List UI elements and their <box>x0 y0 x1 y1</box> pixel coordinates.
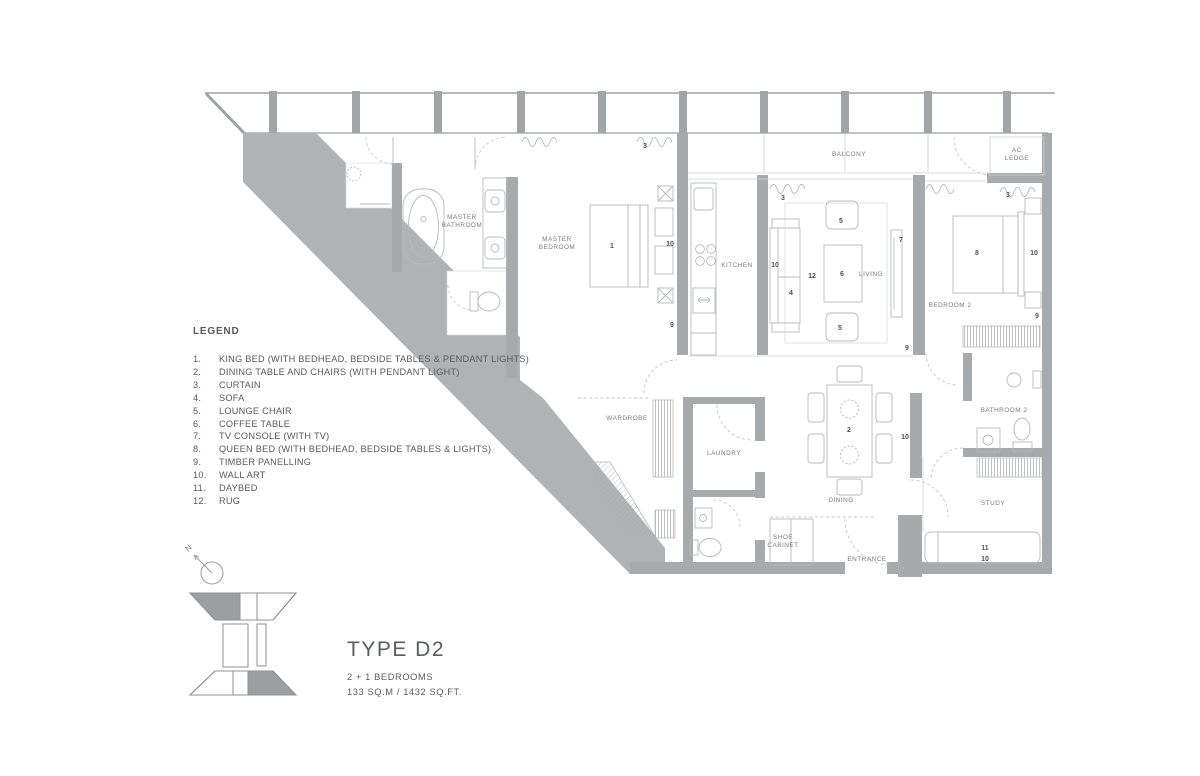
room-label-dining: DINING <box>828 497 853 504</box>
wall-right <box>1042 133 1052 574</box>
door-laundry <box>717 405 752 440</box>
wall-bath2-study <box>963 448 1042 457</box>
item-marker-11: 11 <box>981 545 989 552</box>
corner-diagonal <box>206 94 245 135</box>
wall-dining-right <box>910 393 922 478</box>
door-master-bath-2 <box>475 137 507 169</box>
item-marker-9: 9 <box>905 345 909 352</box>
king-bed <box>590 186 673 303</box>
north-arrow: N <box>183 543 223 584</box>
room-label-study: STUDY <box>981 500 1005 507</box>
legend-item: 6.COFFEE TABLE <box>193 418 529 431</box>
wall-shower <box>392 163 402 272</box>
room-label-wardrobe: WARDROBE <box>606 415 647 422</box>
room-label-balcony: BALCONY <box>832 151 866 158</box>
room-label-living: LIVING <box>859 271 883 278</box>
room-label-kitchen: KITCHEN <box>721 262 753 269</box>
wall-bath2-stub <box>963 353 972 401</box>
room-labels: MASTERBATHROOMMASTERBEDROOMKITCHENLIVING… <box>442 147 1029 563</box>
item-marker-9: 9 <box>670 322 674 329</box>
columns <box>269 91 1011 133</box>
item-marker-3: 3 <box>1006 192 1010 199</box>
wall-kitchen-left <box>677 133 688 355</box>
key-plan-highlight-top <box>190 593 240 620</box>
item-marker-8: 8 <box>975 250 979 257</box>
kitchen-counter <box>691 183 716 355</box>
item-marker-2: 2 <box>847 427 851 434</box>
powder-fixtures <box>690 508 721 557</box>
item-marker-10: 10 <box>771 262 779 269</box>
door-balcony <box>954 137 992 175</box>
item-marker-12: 12 <box>808 273 816 280</box>
item-marker-6: 6 <box>840 271 844 278</box>
item-marker-5: 5 <box>839 218 843 225</box>
item-markers: 3110931041265573810992101110 <box>610 143 1039 563</box>
legend-list: 1.KING BED (WITH BEDHEAD, BEDSIDE TABLES… <box>193 353 529 508</box>
room-label-bedroom-2: BEDROOM 2 <box>929 302 972 309</box>
area-line: 133 SQ.M / 1432 SQ.FT. <box>347 685 462 700</box>
title-block: TYPE D2 2 + 1 BEDROOMS 133 SQ.M / 1432 S… <box>347 638 462 700</box>
door-study <box>911 480 948 517</box>
item-marker-9: 9 <box>1035 313 1039 320</box>
wardrobe-rail <box>653 400 673 477</box>
wardrobe-rail-2 <box>655 510 675 538</box>
bedrooms-line: 2 + 1 BEDROOMS <box>347 670 462 685</box>
door-wardrobe <box>644 360 677 393</box>
legend-item: 12.RUG <box>193 495 529 508</box>
item-marker-3: 3 <box>781 195 785 202</box>
vanity <box>483 178 507 268</box>
floor-plan: MASTERBATHROOMMASTERBEDROOMKITCHENLIVING… <box>0 0 1200 776</box>
key-plan <box>190 593 296 695</box>
curtains <box>522 138 1035 197</box>
legend-item: 9.TIMBER PANELLING <box>193 456 529 469</box>
legend-item: 7.TV CONSOLE (WITH TV) <box>193 430 529 443</box>
legend-item: 4.SOFA <box>193 392 529 405</box>
legend-item: 10.WALL ART <box>193 469 529 482</box>
legend-item: 1.KING BED (WITH BEDHEAD, BEDSIDE TABLES… <box>193 353 529 366</box>
item-marker-7: 7 <box>899 237 903 244</box>
exterior-structure <box>205 91 1055 134</box>
item-marker-1: 1 <box>610 243 614 250</box>
queen-bed <box>953 198 1041 308</box>
north-label: N <box>183 543 193 554</box>
legend-heading: LEGEND <box>193 326 529 337</box>
item-marker-5: 5 <box>838 325 842 332</box>
unit-type-title: TYPE D2 <box>347 638 462 662</box>
item-marker-10: 10 <box>901 434 909 441</box>
study-shelf <box>977 458 1042 477</box>
wall-laundry-bottom <box>690 490 760 497</box>
legend-item: 5.LOUNGE CHAIR <box>193 405 529 418</box>
item-marker-4: 4 <box>789 290 793 297</box>
wall-laundry-top <box>690 397 755 404</box>
item-marker-3: 3 <box>643 143 647 150</box>
kitchen-sink <box>694 188 713 210</box>
wall-bottom-right <box>887 562 1052 574</box>
oven <box>693 288 715 313</box>
item-marker-10: 10 <box>1030 250 1038 257</box>
wall-living-bedroom2 <box>913 175 925 355</box>
room-label-master-bedroom: MASTERBEDROOM <box>539 236 576 251</box>
room-label-master-bathroom: MASTERBATHROOM <box>442 214 482 229</box>
room-label-shoe-cabinet: SHOECABINET <box>767 534 798 549</box>
wall-acledge-bottom <box>987 173 1042 183</box>
wall-powder-right <box>755 540 765 567</box>
wall-laundry-right-b <box>755 472 765 498</box>
room-label-laundry: LAUNDRY <box>707 450 741 457</box>
door-bathroom2 <box>931 448 963 480</box>
wall-laundry-left <box>683 397 693 562</box>
door-powder <box>713 500 740 527</box>
wall-kitchen-right <box>757 175 768 355</box>
legend-item: 11.DAYBED <box>193 482 529 495</box>
lounge-chair-2 <box>826 313 858 341</box>
legend-item: 2.DINING TABLE AND CHAIRS (WITH PENDANT … <box>193 366 529 379</box>
shower-pocket <box>346 163 392 208</box>
legend: LEGEND 1.KING BED (WITH BEDHEAD, BEDSIDE… <box>193 326 529 508</box>
room-label-bathroom-2: BATHROOM 2 <box>981 407 1028 414</box>
key-plan-highlight-bottom <box>248 671 296 695</box>
door-master-bath-1 <box>366 137 393 164</box>
room-label-entrance: ENTRANCE <box>847 556 886 563</box>
legend-item: 8.QUEEN BED (WITH BEDHEAD, BEDSIDE TABLE… <box>193 443 529 456</box>
item-marker-10: 10 <box>666 241 674 248</box>
item-marker-10: 10 <box>981 556 989 563</box>
door-bedroom2 <box>926 353 958 385</box>
wall-laundry-right-a <box>755 397 765 441</box>
bedroom2-wardrobe <box>963 326 1040 347</box>
floor-plan-page: MASTERBATHROOMMASTERBEDROOMKITCHENLIVING… <box>0 0 1200 776</box>
legend-item: 3.CURTAIN <box>193 379 529 392</box>
hatched-joinery <box>583 326 1042 538</box>
room-label-ac-ledge: ACLEDGE <box>1005 147 1029 162</box>
